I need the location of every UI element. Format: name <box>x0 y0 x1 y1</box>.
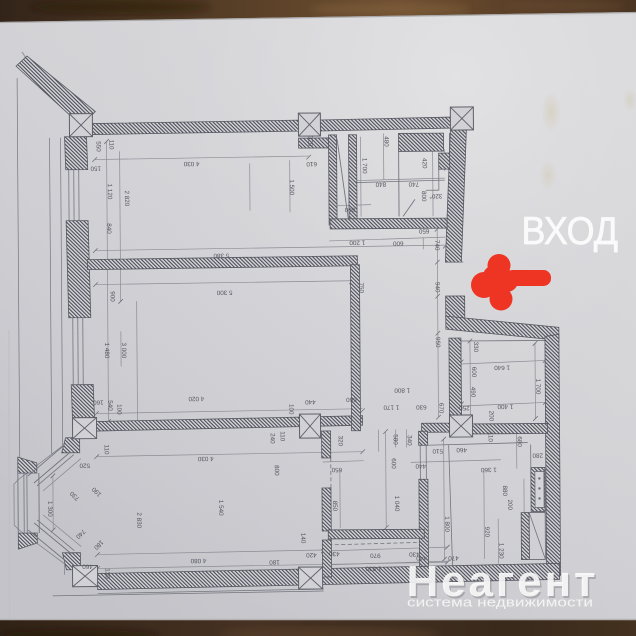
svg-text:650: 650 <box>331 466 342 473</box>
svg-text:680: 680 <box>516 436 523 447</box>
svg-text:5 380: 5 380 <box>213 252 229 259</box>
svg-text:1 400: 1 400 <box>497 403 513 410</box>
svg-text:150: 150 <box>90 165 101 172</box>
svg-text:420: 420 <box>306 551 317 558</box>
svg-text:1 800: 1 800 <box>443 516 450 532</box>
svg-text:600: 600 <box>392 239 403 246</box>
svg-text:460: 460 <box>82 563 93 570</box>
svg-text:1 480: 1 480 <box>103 343 110 359</box>
svg-text:440: 440 <box>305 398 316 405</box>
svg-text:100: 100 <box>115 404 122 415</box>
svg-text:система недвижимости: система недвижимости <box>407 596 593 610</box>
svg-text:110: 110 <box>487 432 494 443</box>
svg-text:600: 600 <box>390 458 397 469</box>
svg-text:1 640: 1 640 <box>494 364 510 371</box>
svg-text:4 030: 4 030 <box>183 160 199 167</box>
svg-text:420: 420 <box>421 158 428 169</box>
svg-text:110: 110 <box>108 139 115 150</box>
svg-text:100: 100 <box>287 404 294 415</box>
svg-text:320°: 320° <box>429 192 443 200</box>
svg-text:2 830: 2 830 <box>135 512 142 528</box>
svg-text:520: 520 <box>79 462 90 469</box>
svg-text:970: 970 <box>370 552 381 559</box>
svg-text:340: 340 <box>406 435 413 446</box>
svg-text:660: 660 <box>346 396 357 403</box>
svg-text:750: 750 <box>358 282 365 293</box>
svg-text:4 080: 4 080 <box>190 557 206 564</box>
svg-text:540: 540 <box>106 400 113 411</box>
svg-text:130: 130 <box>104 568 111 579</box>
svg-text:460: 460 <box>456 446 467 453</box>
svg-text:1 700: 1 700 <box>361 158 368 174</box>
svg-text:950: 950 <box>434 337 441 348</box>
svg-text:650: 650 <box>418 227 429 234</box>
svg-text:320: 320 <box>307 136 314 147</box>
svg-text:1 800: 1 800 <box>394 386 410 393</box>
svg-text:850: 850 <box>331 501 338 512</box>
svg-text:800: 800 <box>420 191 427 202</box>
svg-text:550: 550 <box>95 141 102 152</box>
svg-text:510: 510 <box>432 447 443 454</box>
svg-text:840: 840 <box>375 181 386 188</box>
svg-text:1 170: 1 170 <box>383 403 399 410</box>
svg-text:4 020: 4 020 <box>188 395 204 402</box>
svg-text:600: 600 <box>344 206 355 213</box>
svg-text:490: 490 <box>469 387 476 398</box>
svg-text:880: 880 <box>501 485 508 496</box>
svg-text:1 200: 1 200 <box>349 239 365 246</box>
svg-text:140: 140 <box>299 533 306 544</box>
svg-text:740: 740 <box>408 180 419 187</box>
svg-text:110: 110 <box>103 444 110 455</box>
svg-text:900: 900 <box>109 291 116 302</box>
svg-text:180: 180 <box>269 558 280 565</box>
svg-text:440: 440 <box>415 462 426 469</box>
svg-text:430: 430 <box>329 550 340 557</box>
svg-text:630: 630 <box>416 403 427 410</box>
svg-text:200: 200 <box>487 411 494 422</box>
svg-text:840: 840 <box>105 223 112 234</box>
svg-text:250: 250 <box>459 404 470 411</box>
svg-text:160: 160 <box>93 399 104 406</box>
svg-text:1 700: 1 700 <box>534 379 541 395</box>
svg-text:240: 240 <box>269 433 276 444</box>
svg-text:580: 580 <box>392 434 399 445</box>
svg-text:940: 940 <box>434 282 441 293</box>
svg-text:610: 610 <box>306 160 317 167</box>
svg-text:670: 670 <box>437 403 444 414</box>
svg-text:200: 200 <box>506 499 513 510</box>
svg-text:1 500: 1 500 <box>288 179 295 195</box>
svg-text:1 540: 1 540 <box>217 500 224 516</box>
svg-text:1 300: 1 300 <box>46 501 53 517</box>
svg-text:4 030: 4 030 <box>197 455 213 462</box>
svg-text:320: 320 <box>337 436 344 447</box>
svg-text:800: 800 <box>273 465 280 476</box>
svg-text:330: 330 <box>472 342 479 353</box>
svg-text:ВХОД: ВХОД <box>522 209 619 253</box>
svg-text:110: 110 <box>279 431 286 442</box>
svg-text:920: 920 <box>483 527 490 538</box>
svg-text:1 120: 1 120 <box>106 184 113 200</box>
svg-text:3 000: 3 000 <box>120 342 127 358</box>
svg-text:600: 600 <box>470 367 477 378</box>
svg-text:280: 280 <box>532 451 543 458</box>
svg-text:740: 740 <box>433 240 440 251</box>
svg-text:1 360: 1 360 <box>480 466 496 473</box>
svg-text:480: 480 <box>383 136 390 147</box>
svg-text:1 040: 1 040 <box>393 496 400 512</box>
svg-text:2 820: 2 820 <box>123 190 130 206</box>
svg-text:1 830: 1 830 <box>365 565 381 572</box>
svg-text:5 300: 5 300 <box>216 289 232 296</box>
